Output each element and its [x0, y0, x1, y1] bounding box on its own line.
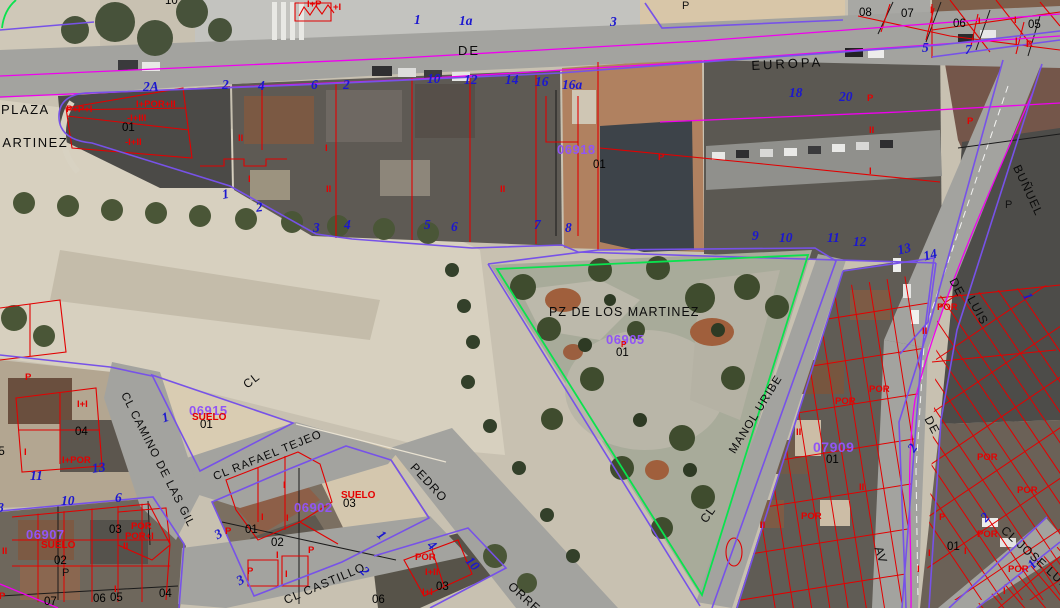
- construction-label: II: [238, 134, 243, 144]
- portal-number: 2: [343, 78, 350, 92]
- parcel-number: 03: [436, 582, 449, 594]
- portal-number: 10: [427, 72, 441, 86]
- parking-mark: P: [682, 1, 689, 12]
- construction-label: P: [658, 153, 664, 163]
- parcel-number: 04: [159, 589, 172, 601]
- street-label: EUROPA: [751, 55, 824, 72]
- construction-label: I: [283, 481, 286, 491]
- parcel-number: 01: [122, 123, 135, 135]
- street-label: DE: [922, 414, 941, 436]
- block-code: 06918: [557, 143, 596, 156]
- portal-number: 2A: [143, 80, 159, 94]
- portal-number: 2: [222, 78, 229, 92]
- portal-number: 12: [853, 235, 867, 249]
- parcel-number: 01: [245, 525, 258, 537]
- construction-label: POR: [869, 385, 890, 395]
- parcel-number: 06: [372, 595, 385, 607]
- portal-number: 11: [827, 231, 840, 245]
- construction-label: P: [967, 117, 973, 127]
- portal-number: 12: [464, 73, 478, 87]
- construction-label: II: [500, 185, 505, 195]
- construction-label: P+P+I: [66, 105, 92, 115]
- parcel-number: 04: [75, 427, 88, 439]
- construction-label: I: [1014, 16, 1017, 26]
- portal-number: 14: [922, 247, 938, 263]
- portal-number: 6: [311, 78, 318, 92]
- parcel-number: 10: [165, 0, 178, 8]
- construction-label: I: [24, 448, 27, 458]
- parcel-number: 01: [593, 160, 606, 172]
- portal-number: 8: [0, 501, 4, 515]
- map-labels: DEEUROPAPLAZAMARTINEZPZ DE LOS MARTINEZC…: [0, 0, 1060, 608]
- construction-label: II: [2, 547, 7, 557]
- portal-number: 1: [221, 187, 230, 201]
- construction-label: -I+II: [125, 138, 142, 148]
- construction-label: I: [978, 17, 981, 27]
- portal-number: 10: [779, 231, 793, 245]
- portal-number: 4: [425, 538, 439, 553]
- street-label: PEDRO: [408, 461, 449, 504]
- construction-label: I: [325, 144, 328, 154]
- street-label: DE: [947, 276, 966, 298]
- street-label: BUÑUEL: [1011, 163, 1045, 218]
- construction-label: I: [930, 6, 933, 16]
- construction-label: II: [796, 428, 801, 438]
- portal-number: 3: [234, 573, 247, 588]
- portal-number: 8: [565, 221, 572, 235]
- construction-label: II: [859, 483, 864, 493]
- parcel-number: 05: [1028, 20, 1041, 32]
- construction-label: I: [1003, 587, 1006, 597]
- construction-label: P: [1026, 40, 1032, 50]
- construction-label: I+I: [77, 400, 88, 410]
- construction-label: POR: [937, 303, 958, 313]
- portal-number: 7: [965, 43, 972, 57]
- construction-label: I+II: [425, 568, 438, 578]
- portal-number: 11: [30, 469, 43, 483]
- portal-number: 4: [258, 79, 265, 93]
- portal-number: 5: [922, 41, 929, 55]
- construction-label: POR: [801, 512, 822, 522]
- construction-label: POR+I: [125, 532, 154, 542]
- construction-label: POR: [415, 553, 436, 563]
- portal-number: 2: [905, 441, 920, 454]
- construction-label: +I: [333, 3, 341, 13]
- street-label: CL: [698, 504, 718, 525]
- construction-label: I: [285, 570, 288, 580]
- parcel-number: 01: [616, 348, 629, 360]
- street-label: CL CASTILLO: [282, 561, 367, 606]
- portal-number: 16: [535, 75, 549, 89]
- portal-number: 4: [344, 218, 351, 232]
- portal-number: 6: [115, 491, 122, 505]
- street-label: AV: [873, 545, 890, 565]
- construction-label: I: [869, 167, 872, 177]
- construction-label: I: [286, 514, 289, 524]
- portal-number: 3: [313, 221, 320, 235]
- construction-label: I: [276, 551, 279, 561]
- portal-number: 7: [534, 218, 541, 232]
- construction-label: P: [247, 567, 253, 577]
- portal-number: 1a: [459, 14, 473, 28]
- parcel-number: 08: [859, 8, 872, 20]
- block-code: 07909: [813, 440, 854, 454]
- street-label: DE: [458, 44, 480, 57]
- construction-label: I+P: [307, 0, 322, 10]
- construction-label: II: [869, 126, 874, 136]
- portal-number: 2: [978, 510, 992, 524]
- construction-label: II: [123, 542, 128, 552]
- street-label: CL CAMINO DE LAS GIL: [118, 391, 196, 529]
- construction-label: POR: [1017, 486, 1038, 496]
- portal-number: 13: [91, 460, 106, 475]
- construction-label: P: [225, 527, 231, 537]
- street-label: ORRE: [506, 580, 543, 608]
- portal-number: 1: [1020, 290, 1035, 303]
- portal-number: 18: [789, 86, 803, 100]
- construction-label: POR: [977, 453, 998, 463]
- map-viewport[interactable]: DEEUROPAPLAZAMARTINEZPZ DE LOS MARTINEZC…: [0, 0, 1060, 608]
- portal-number: 20: [839, 90, 853, 104]
- portal-number: 16a: [562, 78, 582, 92]
- portal-number: 9: [752, 229, 759, 243]
- construction-label: P: [939, 513, 945, 523]
- construction-label: I+POR+II: [136, 100, 176, 110]
- construction-label: I: [248, 175, 251, 185]
- construction-label: POR: [977, 530, 998, 540]
- portal-number: 2: [255, 200, 264, 214]
- construction-label: I+I: [422, 588, 433, 598]
- parcel-number: 02: [54, 556, 67, 568]
- portal-number: 3: [610, 15, 617, 29]
- portal-number: 6: [451, 220, 458, 234]
- parcel-number: 02: [271, 538, 284, 550]
- construction-label: I: [114, 585, 117, 595]
- parcel-number: 06: [953, 19, 966, 31]
- construction-label: POR: [1008, 565, 1029, 575]
- construction-label: SUELO: [341, 491, 375, 501]
- construction-label: SUELO: [192, 413, 226, 423]
- portal-number: 10: [61, 494, 75, 508]
- parking-mark: P: [62, 568, 69, 579]
- street-label: MARTINEZ: [0, 136, 68, 149]
- parcel-number: 07: [44, 597, 57, 608]
- portal-number: 10: [463, 554, 482, 573]
- street-label: MANOL URIBE: [728, 374, 785, 456]
- construction-label: -I+III: [127, 114, 146, 124]
- street-label: CL RAFAEL TEJEO: [212, 429, 324, 483]
- portal-number: 1: [374, 528, 388, 542]
- construction-label: P: [25, 373, 31, 383]
- construction-label: P: [621, 341, 626, 349]
- construction-label: I: [1015, 37, 1018, 47]
- parcel-number: 01: [947, 542, 960, 554]
- construction-label: P: [0, 592, 5, 602]
- construction-label: II: [760, 521, 765, 531]
- portal-number: 14: [505, 73, 519, 87]
- construction-label: I+POR: [62, 456, 91, 466]
- street-label: CL: [241, 370, 262, 390]
- portal-number: 3: [212, 527, 225, 542]
- street-label: PZ DE LOS MARTINEZ: [549, 306, 699, 319]
- street-label: LUIS: [965, 294, 990, 327]
- parcel-number: 05: [0, 447, 5, 459]
- construction-label: II: [922, 327, 927, 337]
- portal-number: 1: [160, 410, 171, 425]
- construction-label: I: [964, 547, 967, 557]
- portal-number: 5: [424, 218, 431, 232]
- parcel-number: 01: [826, 455, 839, 467]
- construction-label: P: [308, 546, 314, 556]
- parcel-number: 07: [901, 9, 914, 21]
- street-label: PLAZA: [1, 103, 50, 116]
- portal-number: 1: [414, 13, 421, 27]
- portal-number: 13: [896, 241, 912, 257]
- construction-label: P: [867, 94, 873, 104]
- parcel-number: 03: [109, 525, 122, 537]
- construction-label: II: [326, 185, 331, 195]
- construction-label: POR: [835, 397, 856, 407]
- construction-label: I: [928, 549, 931, 559]
- construction-label: I: [917, 565, 920, 575]
- parking-mark: P: [1005, 200, 1012, 211]
- parcel-number: 06: [93, 594, 106, 606]
- construction-label: I: [261, 513, 264, 523]
- block-code: 06902: [294, 501, 333, 514]
- construction-label: SUELO: [41, 541, 75, 551]
